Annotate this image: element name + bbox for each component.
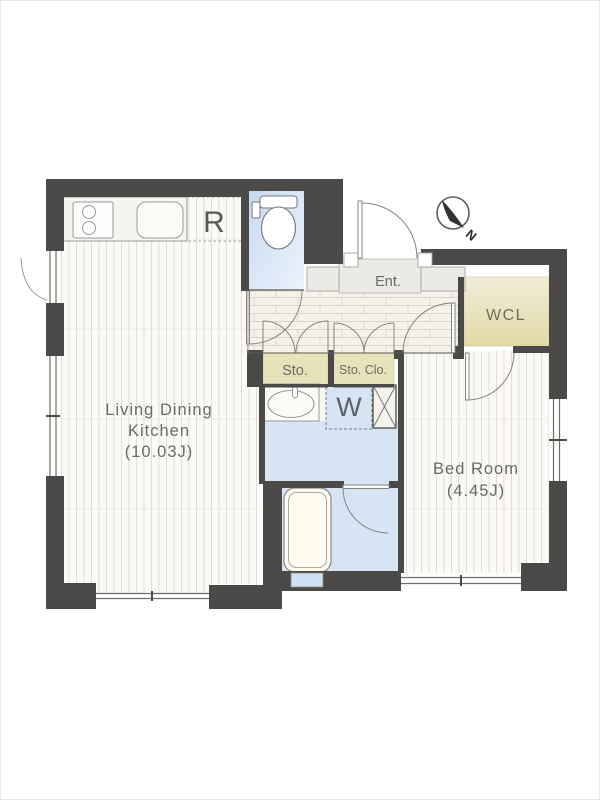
- wall-washroom-left: [259, 387, 265, 484]
- wall-toilet-left: [241, 189, 249, 291]
- wall-top-right: [421, 249, 567, 265]
- label-storage-closet: Sto. Clo.: [339, 363, 387, 377]
- wall-bottom-left-corner: [46, 583, 96, 609]
- window-left: [46, 356, 60, 476]
- wall-storage-sill: [263, 384, 328, 388]
- wall-right-a: [549, 265, 567, 399]
- wall-ldk-bottom: [209, 585, 282, 609]
- wall-bath-divider-right: [389, 481, 404, 488]
- wall-storage-mid-pier: [328, 350, 334, 387]
- toilet-bowl-icon: [262, 207, 296, 249]
- toilet-handle-icon: [252, 202, 260, 218]
- wall-bath-left: [263, 481, 282, 578]
- label-entrance: Ent.: [375, 274, 401, 290]
- label-storage: Sto.: [282, 363, 308, 379]
- wall-top-left: [46, 179, 249, 197]
- refrigerator-mark: R: [203, 206, 225, 239]
- wall-left-a: [46, 197, 64, 251]
- label-wcl: WCL: [486, 307, 526, 324]
- wall-bedroom-bottom-left: [321, 571, 401, 591]
- wall-bath-divider-left: [263, 481, 344, 488]
- washbasin-icon: [268, 391, 314, 418]
- bathtub-icon: [284, 488, 331, 572]
- door-frame: [418, 253, 432, 267]
- wall-above-toilet: [249, 179, 304, 191]
- wall-right-b: [549, 481, 567, 564]
- toilet-tank-icon: [260, 196, 297, 208]
- entrance-door: [344, 201, 432, 267]
- room-label-ldk-line1: Living Dining: [105, 401, 212, 419]
- compass-icon: N: [437, 197, 480, 244]
- wall-wcl-left: [458, 277, 464, 346]
- wall-toilet-right: [304, 179, 343, 264]
- window-bedroom-bottom: [401, 573, 521, 587]
- ldk-floor: [56, 195, 259, 593]
- casement-window-left: [21, 251, 60, 303]
- washroom-wet-floor: [263, 421, 398, 484]
- shoe-cabinet-left: [307, 267, 339, 291]
- room-label-ldk-size: (10.03J): [125, 443, 194, 461]
- wall-hall-left-pier: [247, 350, 263, 387]
- compass-north-label: N: [463, 226, 480, 244]
- bath-window: [291, 573, 323, 587]
- floor-plan-page: N Living Dining Kitchen (10.03J) Bed Roo…: [0, 0, 600, 800]
- kitchen-sink-icon: [137, 202, 183, 238]
- wall-bedroom-left: [398, 350, 404, 579]
- washer-mark: W: [336, 392, 362, 422]
- window-bedroom-right: [549, 399, 567, 481]
- wall-wcl-bottom: [513, 346, 549, 353]
- wall-bottom-right-corner: [521, 563, 567, 591]
- room-label-bedroom-size: (4.45J): [447, 482, 505, 500]
- wall-left-b: [46, 303, 64, 356]
- hall-floor: [247, 291, 458, 353]
- room-label-ldk-line2: Kitchen: [128, 422, 190, 440]
- door-frame: [344, 253, 358, 267]
- bath-fixtures: [284, 488, 331, 572]
- wall-storage-closet-sill: [334, 384, 394, 388]
- room-label-bedroom: Bed Room: [433, 460, 519, 478]
- faucet-icon: [293, 387, 298, 398]
- floor-plan-canvas: N Living Dining Kitchen (10.03J) Bed Roo…: [1, 1, 600, 800]
